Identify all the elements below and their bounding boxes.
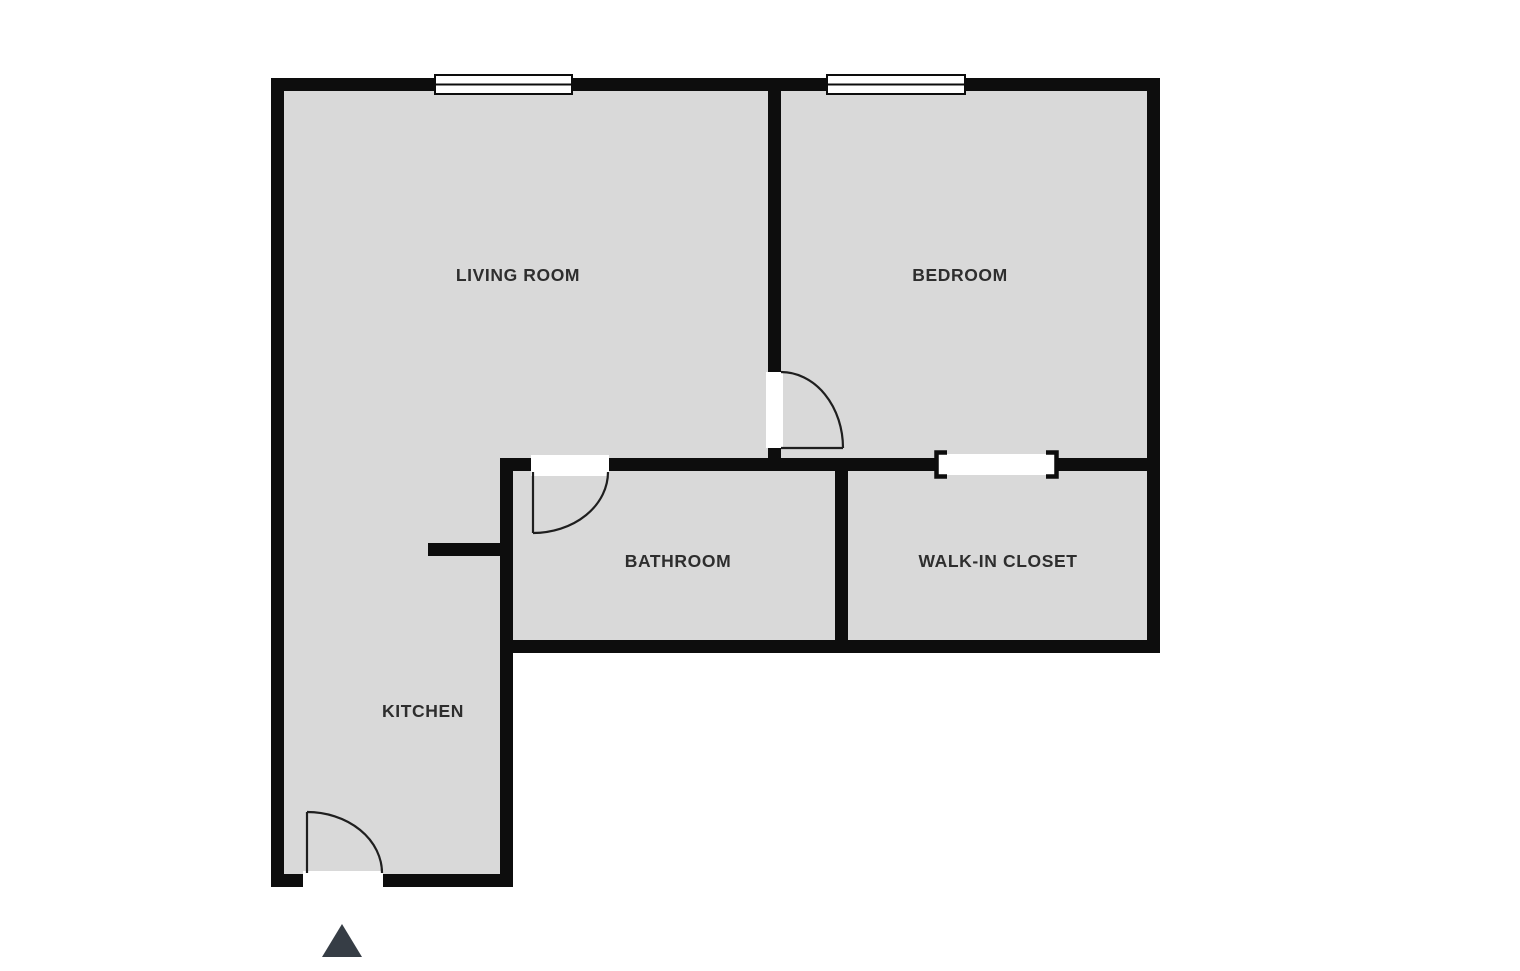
wall-kitchen-stub <box>428 543 513 556</box>
wall-kitchen-right <box>500 458 513 887</box>
living-room-label: LIVING ROOM <box>456 265 580 285</box>
wall-top <box>271 78 1160 91</box>
wall-bathroom-closet-divider <box>835 458 848 653</box>
entrance-door-gap <box>303 871 383 889</box>
floor-plan-canvas: LIVING ROOM BEDROOM BATHROOM WALK-IN CLO… <box>0 0 1520 971</box>
walk-in-closet-opening <box>936 454 1057 475</box>
wall-bath-closet-bottom <box>500 640 1160 653</box>
bedroom-door-gap <box>766 372 783 448</box>
kitchen-label: KITCHEN <box>382 701 464 721</box>
floor-plan-page: LIVING ROOM BEDROOM BATHROOM WALK-IN CLO… <box>0 0 1520 971</box>
wall-right <box>1147 78 1160 653</box>
walk-in-closet-label: WALK-IN CLOSET <box>918 551 1077 571</box>
bathroom-label: BATHROOM <box>625 551 732 571</box>
wall-left <box>271 78 284 887</box>
entrance-arrow-icon <box>322 924 362 957</box>
bedroom-label: BEDROOM <box>912 265 1008 285</box>
bathroom-door-gap <box>531 455 609 476</box>
floor-area <box>271 78 1160 887</box>
